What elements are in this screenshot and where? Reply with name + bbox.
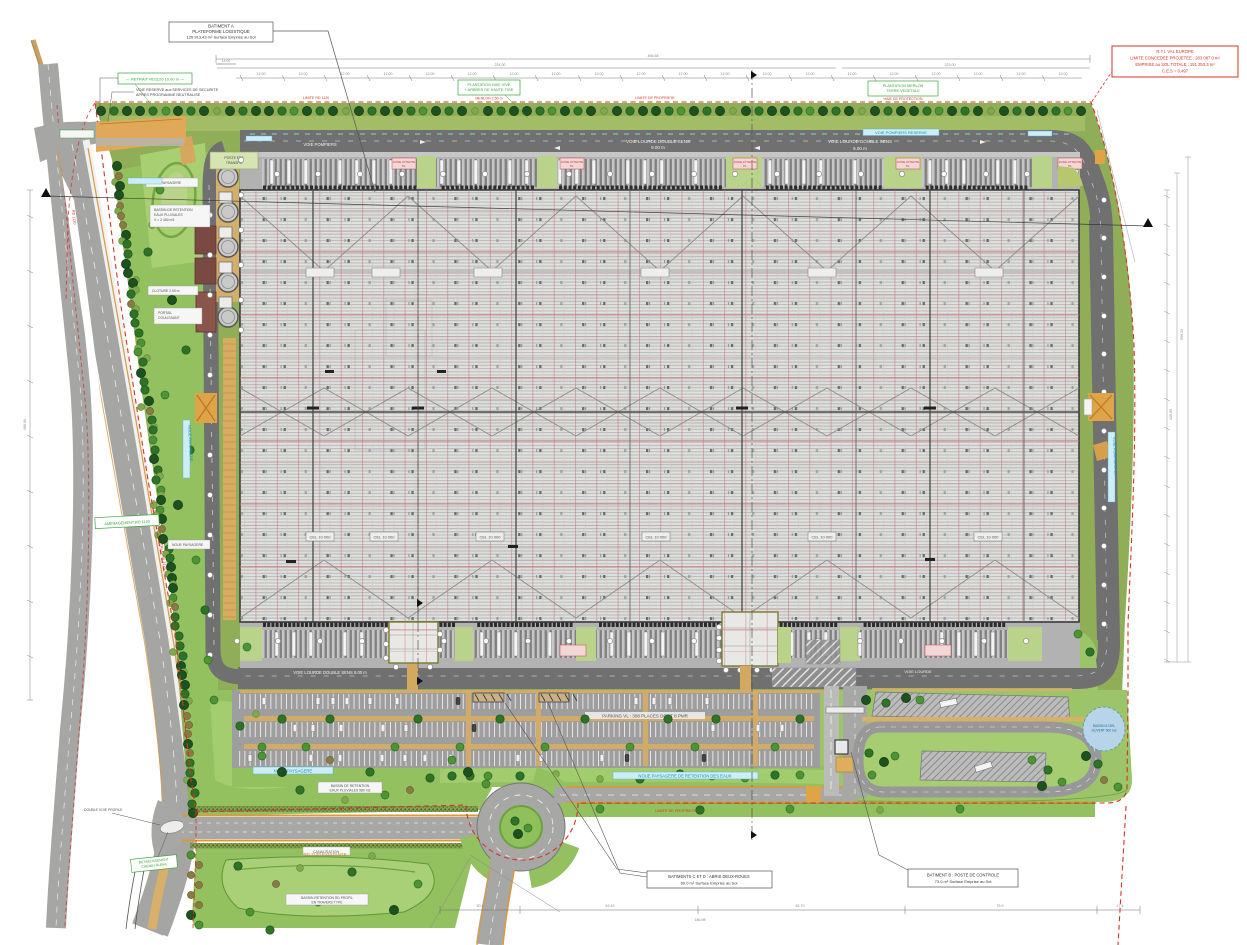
svg-text:486.00: 486.00 bbox=[23, 419, 27, 430]
svg-text:12.00: 12.00 bbox=[763, 72, 772, 76]
svg-text:73.0 m² Surface Emprise au Sol: 73.0 m² Surface Emprise au Sol bbox=[935, 879, 992, 884]
svg-text:12.00: 12.00 bbox=[468, 72, 477, 76]
svg-text:VOIE POMPIERS: VOIE POMPIERS bbox=[303, 142, 336, 147]
svg-text:14.00: 14.00 bbox=[222, 59, 231, 63]
svg-text:CEL 10 000: CEL 10 000 bbox=[480, 535, 502, 540]
svg-text:12.00: 12.00 bbox=[384, 72, 393, 76]
svg-text:CEL 10 000: CEL 10 000 bbox=[310, 535, 332, 540]
svg-text:PLATEFORME LOGISTIQUE: PLATEFORME LOGISTIQUE bbox=[192, 29, 250, 34]
svg-text:PL: PL bbox=[906, 164, 910, 168]
svg-text:NOUE PAYSAGERE DE RETENTION DE: NOUE PAYSAGERE DE RETENTION DES EAUX bbox=[638, 774, 731, 779]
svg-text:RD 1120 EXISTANTE: RD 1120 EXISTANTE bbox=[303, 852, 346, 857]
svg-text:LIMITE DE PROPRIETE: LIMITE DE PROPRIETE bbox=[655, 809, 697, 813]
svg-text:MERLON 2.50 m: MERLON 2.50 m bbox=[475, 97, 502, 101]
svg-text:12.00: 12.00 bbox=[595, 72, 604, 76]
svg-text:BATIMENTS C ET D : ABRIS DEUX-: BATIMENTS C ET D : ABRIS DEUX-ROUES bbox=[668, 874, 750, 879]
svg-text:PL: PL bbox=[402, 164, 406, 168]
svg-text:APRES PROGRAMME NEUTRALISE: APRES PROGRAMME NEUTRALISE bbox=[136, 93, 201, 97]
svg-text:466.68: 466.68 bbox=[648, 54, 659, 58]
svg-text:PORTAIL: PORTAIL bbox=[158, 311, 172, 315]
svg-text:126 913.43 m² Surface Emprise: 126 913.43 m² Surface Emprise au Sol bbox=[187, 35, 256, 40]
svg-text:LIMITE CONCEDEE PROJETEE : 283: LIMITE CONCEDEE PROJETEE : 283 087.0 m² bbox=[1130, 56, 1220, 61]
svg-text:30.4: 30.4 bbox=[477, 904, 484, 908]
svg-text:61.43: 61.43 bbox=[606, 904, 615, 908]
svg-text:12.00: 12.00 bbox=[1017, 72, 1026, 76]
svg-text:12.00: 12.00 bbox=[721, 72, 730, 76]
svg-text:12.00: 12.00 bbox=[848, 72, 857, 76]
svg-text:12.00: 12.00 bbox=[341, 72, 350, 76]
svg-text:BASSIN DE RETENTION: BASSIN DE RETENTION bbox=[331, 784, 370, 788]
svg-text:223.00: 223.00 bbox=[945, 63, 956, 67]
svg-text:VOIE LOURDE DOUBLE SENS: VOIE LOURDE DOUBLE SENS bbox=[828, 139, 892, 144]
svg-text:BATIMENT B : POSTE DE CONTROLE: BATIMENT B : POSTE DE CONTROLE bbox=[927, 873, 999, 878]
svg-text:12.00: 12.00 bbox=[426, 72, 435, 76]
svg-text:BASSIN DE RETENTION: BASSIN DE RETENTION bbox=[154, 208, 193, 212]
svg-text:VOIE LOURDE DOUBLE SENS: VOIE LOURDE DOUBLE SENS bbox=[626, 139, 690, 144]
svg-text:17.4: 17.4 bbox=[1117, 904, 1124, 908]
svg-text:TERRE VEGETALE: TERRE VEGETALE bbox=[886, 89, 920, 93]
svg-text:NOUE PAYSAGERE: NOUE PAYSAGERE bbox=[172, 543, 204, 547]
svg-text:PLANTATION HAIE VIVE: PLANTATION HAIE VIVE bbox=[468, 83, 511, 87]
svg-text:+ ARBRES DE HAUTE TIGE: + ARBRES DE HAUTE TIGE bbox=[465, 88, 514, 92]
svg-text:60.0 m² Surface Emprise au Sol: 60.0 m² Surface Emprise au Sol bbox=[681, 881, 738, 886]
svg-text:V = 2 450 m3: V = 2 450 m3 bbox=[154, 218, 174, 222]
svg-text:PL: PL bbox=[570, 164, 574, 168]
svg-text:CEL 10 000: CEL 10 000 bbox=[646, 535, 668, 540]
svg-text:BATIMENT A: BATIMENT A bbox=[208, 24, 234, 29]
svg-text:12.00: 12.00 bbox=[552, 72, 561, 76]
svg-text:9.00 m: 9.00 m bbox=[853, 146, 867, 151]
svg-text:CEL 10 000: CEL 10 000 bbox=[978, 535, 1000, 540]
svg-text:EAUX PLUVIALES: EAUX PLUVIALES bbox=[154, 213, 183, 217]
svg-text:234.00: 234.00 bbox=[495, 63, 506, 67]
svg-text:12.00: 12.00 bbox=[890, 72, 899, 76]
svg-text:PLANTATION MERLON: PLANTATION MERLON bbox=[883, 84, 924, 88]
svg-text:12.00: 12.00 bbox=[1059, 72, 1068, 76]
svg-text:LIMITE RD 1120: LIMITE RD 1120 bbox=[303, 96, 330, 100]
svg-text:75.9: 75.9 bbox=[997, 904, 1004, 908]
svg-text:CLOTURE 2.00 m: CLOTURE 2.00 m bbox=[152, 289, 180, 293]
svg-text:12.00: 12.00 bbox=[932, 72, 941, 76]
svg-text:12.00: 12.00 bbox=[637, 72, 646, 76]
svg-text:— RETRAIT RD1120 10.00 m —: — RETRAIT RD1120 10.00 m — bbox=[126, 77, 184, 82]
svg-text:12.00: 12.00 bbox=[679, 72, 688, 76]
svg-text:COULISSANT: COULISSANT bbox=[158, 316, 180, 320]
svg-text:12.00: 12.00 bbox=[806, 72, 815, 76]
svg-text:BASSIN RETENTION RD PROFIL: BASSIN RETENTION RD PROFIL bbox=[301, 896, 353, 900]
svg-text:R.T.I. VAL EUROPE: R.T.I. VAL EUROPE bbox=[1156, 49, 1193, 54]
svg-text:EN TRAVERS TYPE: EN TRAVERS TYPE bbox=[311, 901, 343, 905]
svg-text:9.00 m: 9.00 m bbox=[651, 145, 665, 150]
svg-text:EMPRISE au SOL TOTALE : 151 25: EMPRISE au SOL TOTALE : 151 253.3 m² bbox=[1135, 62, 1215, 67]
svg-text:DOUBLE VOIE PROFILE: DOUBLE VOIE PROFILE bbox=[84, 808, 123, 812]
svg-text:CEL 10 000: CEL 10 000 bbox=[812, 535, 834, 540]
svg-text:VOIE LOURDE: VOIE LOURDE bbox=[904, 669, 932, 674]
svg-text:12.00: 12.00 bbox=[510, 72, 519, 76]
svg-text:HAIE DE PROTECTION: HAIE DE PROTECTION bbox=[884, 97, 923, 101]
svg-text:BASSIN A CIEL: BASSIN A CIEL bbox=[1093, 724, 1116, 728]
svg-text:12.00: 12.00 bbox=[257, 72, 266, 76]
svg-text:509.20: 509.20 bbox=[1180, 329, 1184, 340]
svg-text:186.98: 186.98 bbox=[695, 918, 706, 922]
svg-text:OUVERT 600 m3: OUVERT 600 m3 bbox=[1092, 729, 1117, 733]
svg-text:C.E.S = 0.497: C.E.S = 0.497 bbox=[1162, 69, 1189, 74]
svg-text:LIMITE DE PROPRIETE: LIMITE DE PROPRIETE bbox=[635, 96, 675, 100]
svg-text:PL: PL bbox=[743, 164, 747, 168]
svg-text:PARKING VL : 308 PLACES DONT 8: PARKING VL : 308 PLACES DONT 8 PMR bbox=[602, 714, 688, 719]
svg-text:82.70: 82.70 bbox=[796, 904, 805, 908]
svg-text:VOIE POMPIERS RESERVE: VOIE POMPIERS RESERVE bbox=[875, 130, 927, 135]
svg-text:EAUX PLUVIALES 980 m3: EAUX PLUVIALES 980 m3 bbox=[330, 789, 371, 793]
svg-text:VOIE RESERVE aux SERVICES DE S: VOIE RESERVE aux SERVICES DE SECURITE bbox=[136, 88, 219, 92]
svg-text:VOIE LOURDE DOUBLE SENS 9.00 m: VOIE LOURDE DOUBLE SENS 9.00 m bbox=[293, 670, 367, 675]
svg-text:12.00: 12.00 bbox=[974, 72, 983, 76]
svg-text:12.00: 12.00 bbox=[299, 72, 308, 76]
svg-text:435.00: 435.00 bbox=[1169, 409, 1173, 420]
svg-text:CEL 10 000: CEL 10 000 bbox=[374, 535, 396, 540]
